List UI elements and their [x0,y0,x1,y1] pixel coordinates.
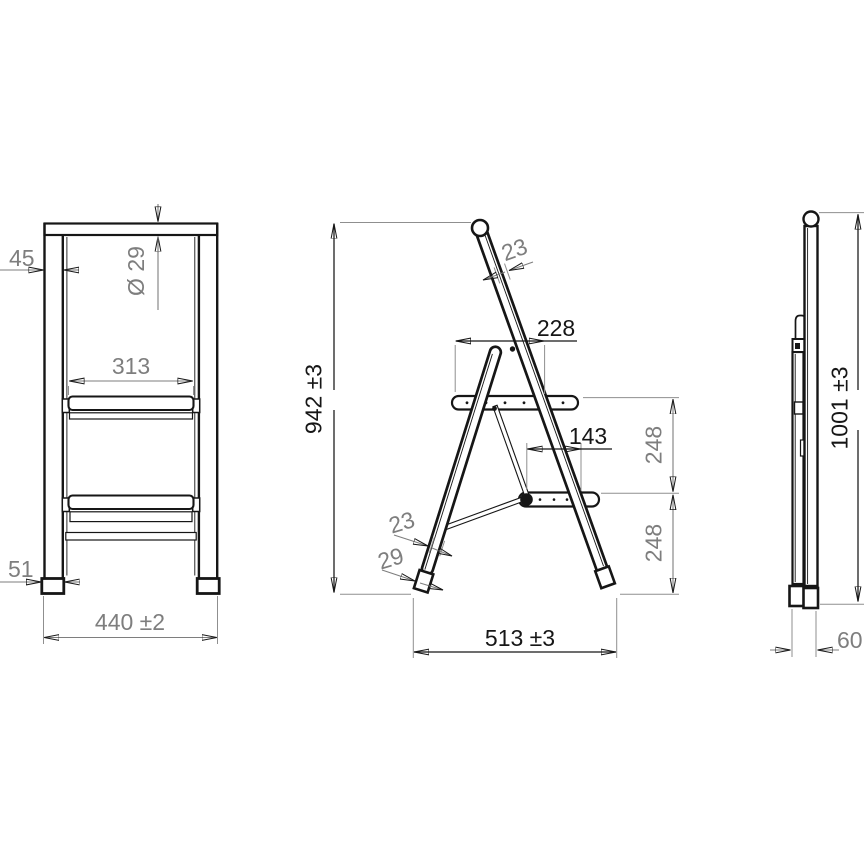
handle-bar [45,224,218,236]
dim-folded-height: 1001 ±3 [827,367,853,450]
dim-folded-depth: 60 [837,627,863,653]
side-front-foot [414,570,433,592]
brace-anchor [492,406,497,411]
dim-overall-width: 440 ±2 [95,609,165,635]
dim-base-footprint: 513 ±3 [485,625,555,651]
dim-brace-offset: 143 [569,423,607,449]
apex-hinge [510,346,515,351]
side-view-ladder [414,220,615,592]
dim-foot-width: 51 [8,556,34,582]
folded-front-rail [793,352,804,584]
folded-front-foot [790,586,805,606]
dim-upper-step-rise: 248 [641,426,667,464]
dim-step-width: 313 [112,353,150,379]
handle-knob [472,220,488,236]
front-step-2 [62,496,199,541]
front-view-dimensions: 45 Ø 29 313 51 440 ±2 [0,204,218,644]
folded-view-ladder [790,212,819,609]
front-right-foot [197,579,219,594]
technical-drawing: 45 Ø 29 313 51 440 ±2 942 ±3 23 [0,0,868,868]
front-step-1 [62,397,199,420]
upper-brace [493,405,529,496]
side-view-dimensions: 942 ±3 23 228 143 248 248 [301,223,680,659]
drawing-sheet: 45 Ø 29 313 51 440 ±2 942 ±3 23 [0,0,868,868]
dim-rail-profile-lower: 23 [386,506,418,538]
folded-handle-knob [804,212,819,227]
folded-hinge-upper [795,402,804,414]
dim-handle-diameter: Ø 29 [123,246,149,296]
side-back-foot [595,566,615,588]
dim-lower-step-rise: 248 [641,524,667,562]
folded-back-rail [805,226,818,586]
dim-platform-depth: 228 [537,315,575,341]
folded-back-foot [804,588,819,608]
front-rail [414,345,504,593]
dim-foot-profile: 29 [375,542,407,574]
dim-leg-width: 45 [9,245,35,271]
brace-pivot [520,493,533,506]
front-left-foot [42,579,64,594]
dim-rail-profile-upper: 23 [498,233,531,266]
dim-open-height: 942 ±3 [301,364,327,434]
